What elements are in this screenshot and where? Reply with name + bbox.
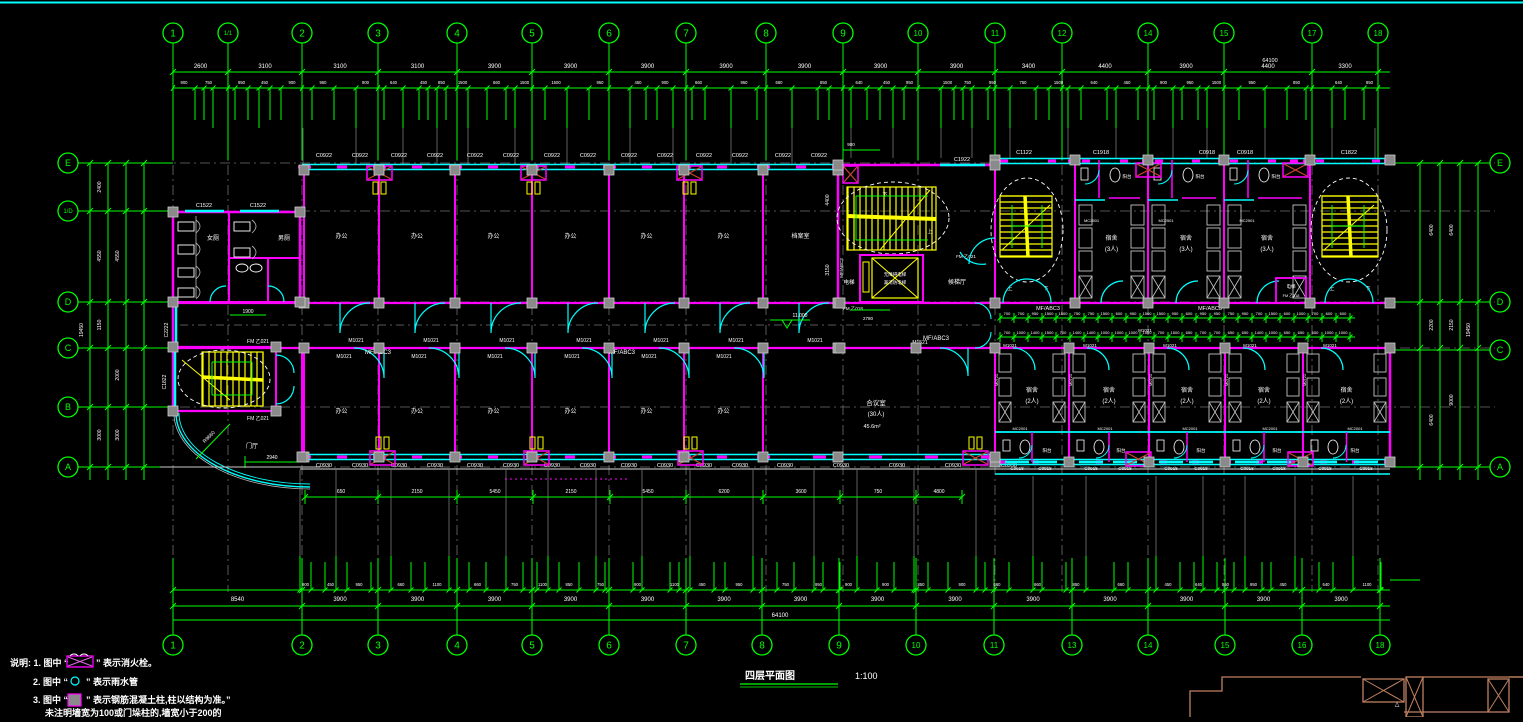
svg-text:(3人): (3人) <box>1105 246 1118 253</box>
svg-text:640: 640 <box>1335 80 1343 85</box>
svg-text:M1021: M1021 <box>1163 343 1177 348</box>
svg-text:3000: 3000 <box>97 429 103 440</box>
svg-text:950: 950 <box>1187 80 1195 85</box>
svg-text:C1122: C1122 <box>1016 150 1032 156</box>
svg-text:FM 乙018: FM 乙018 <box>1283 293 1300 298</box>
svg-text:(2人): (2人) <box>1180 398 1193 405</box>
svg-text:M1021: M1021 <box>1323 343 1337 348</box>
svg-text:10: 10 <box>912 641 921 650</box>
svg-text:门厅: 门厅 <box>246 442 258 450</box>
svg-text:(2人): (2人) <box>1340 398 1353 405</box>
svg-text:750: 750 <box>1020 80 1028 85</box>
svg-text:C0918: C0918 <box>1010 466 1024 471</box>
svg-text:C0922: C0922 <box>467 153 483 159</box>
svg-text:C0918: C0918 <box>1318 466 1332 471</box>
svg-text:C0930: C0930 <box>945 463 961 469</box>
svg-text:640: 640 <box>390 80 398 85</box>
svg-text:阳台: 阳台 <box>1273 447 1282 454</box>
svg-text:640: 640 <box>856 80 864 85</box>
svg-text:950: 950 <box>736 582 744 587</box>
svg-text:合议室: 合议室 <box>866 398 886 407</box>
svg-text:2200: 2200 <box>1429 319 1435 330</box>
svg-text:850: 850 <box>1293 80 1301 85</box>
svg-text:650: 650 <box>1228 330 1235 335</box>
svg-text:900: 900 <box>181 80 189 85</box>
svg-text:办公: 办公 <box>335 232 347 240</box>
svg-text:候梯厅: 候梯厅 <box>948 278 966 286</box>
svg-text:C2222: C2222 <box>164 322 170 337</box>
svg-text:1500: 1500 <box>1157 311 1167 316</box>
svg-text:450: 450 <box>635 80 643 85</box>
svg-text:3100: 3100 <box>411 64 425 70</box>
svg-text:(2人): (2人) <box>1025 398 1038 405</box>
svg-text:750: 750 <box>1228 311 1235 316</box>
svg-text:阳台: 阳台 <box>1043 447 1052 454</box>
svg-text:C0922: C0922 <box>427 153 443 159</box>
svg-text:450: 450 <box>699 582 707 587</box>
svg-text:MC2001: MC2001 <box>1097 426 1113 431</box>
svg-text:650: 650 <box>1284 330 1291 335</box>
svg-text:C0918: C0918 <box>1194 466 1208 471</box>
svg-text:C0922: C0922 <box>657 153 673 159</box>
svg-text:FM 乙021: FM 乙021 <box>247 415 269 422</box>
svg-text:2400: 2400 <box>97 181 103 192</box>
svg-text:MC2001: MC2001 <box>1347 426 1363 431</box>
svg-text:MC2001: MC2001 <box>1182 426 1198 431</box>
svg-text:FM 乙021: FM 乙021 <box>247 338 269 345</box>
svg-text:办公: 办公 <box>640 407 652 415</box>
svg-text:C0922: C0922 <box>544 153 560 159</box>
svg-text:C0930: C0930 <box>427 463 443 469</box>
svg-text:宿舍: 宿舍 <box>1180 234 1192 242</box>
svg-text:750: 750 <box>597 582 605 587</box>
svg-text:宿舍: 宿舍 <box>1105 234 1117 242</box>
svg-text:1400: 1400 <box>1255 330 1265 335</box>
svg-text:C0918: C0918 <box>1199 150 1215 156</box>
svg-text:1:100: 1:100 <box>855 671 878 681</box>
svg-text:办公: 办公 <box>564 232 576 240</box>
svg-text:3900: 3900 <box>641 597 655 603</box>
svg-text:M0721: M0721 <box>1068 373 1073 386</box>
svg-text:950: 950 <box>989 80 997 85</box>
svg-text:3900: 3900 <box>1103 597 1117 603</box>
svg-text:5450: 5450 <box>489 489 500 495</box>
svg-text:3100: 3100 <box>258 64 272 70</box>
svg-text:3900: 3900 <box>488 64 502 70</box>
svg-text:3900: 3900 <box>794 597 808 603</box>
svg-text:3900: 3900 <box>1179 64 1193 70</box>
svg-text:4: 4 <box>454 641 460 652</box>
svg-text:7: 7 <box>683 641 689 652</box>
svg-text:11: 11 <box>990 641 999 650</box>
svg-text:1500: 1500 <box>1101 311 1111 316</box>
svg-text:3. 图中 “: 3. 图中 “ <box>33 694 68 705</box>
svg-text:600: 600 <box>1186 311 1193 316</box>
svg-text:3900: 3900 <box>1257 597 1271 603</box>
svg-text:宿舍: 宿舍 <box>1103 386 1115 394</box>
svg-text:850: 850 <box>918 582 926 587</box>
svg-text:6400: 6400 <box>1429 414 1435 425</box>
svg-text:C0930: C0930 <box>316 463 332 469</box>
svg-text:说明: 1. 图中 “: 说明: 1. 图中 “ <box>10 657 69 668</box>
svg-text:电梯: 电梯 <box>843 278 855 286</box>
svg-text:女厕: 女厕 <box>207 234 219 242</box>
svg-text:450: 450 <box>1280 582 1288 587</box>
svg-text:C1822: C1822 <box>1341 150 1357 156</box>
svg-text:C1918: C1918 <box>1093 150 1109 156</box>
svg-text:M0721: M0721 <box>1224 373 1229 386</box>
svg-text:3900: 3900 <box>1180 597 1194 603</box>
svg-text:1: 1 <box>170 641 176 652</box>
svg-text:1400: 1400 <box>1031 330 1041 335</box>
svg-text:A: A <box>1497 462 1503 472</box>
svg-text:3900: 3900 <box>948 597 962 603</box>
svg-text:1900: 1900 <box>242 309 253 315</box>
svg-text:14: 14 <box>1144 29 1153 38</box>
svg-text:M0721: M0721 <box>1148 373 1153 386</box>
svg-text:办公: 办公 <box>717 232 729 240</box>
svg-text:未注明墙宽为100或门垛柱的,墙宽小于200的: 未注明墙宽为100或门垛柱的,墙宽小于200的 <box>44 707 222 717</box>
svg-text:15: 15 <box>1220 29 1229 38</box>
svg-text:M1021: M1021 <box>1138 328 1152 333</box>
svg-text:M1021: M1021 <box>487 354 503 360</box>
svg-text:750: 750 <box>1088 311 1095 316</box>
svg-text:上: 上 <box>927 228 932 235</box>
svg-text:750: 750 <box>511 582 519 587</box>
svg-text:C0918: C0918 <box>1038 466 1052 471</box>
svg-text:M1021: M1021 <box>1003 343 1017 348</box>
svg-text:14: 14 <box>1144 641 1153 650</box>
svg-text:450: 450 <box>327 582 335 587</box>
svg-text:△: △ <box>1395 702 1400 708</box>
svg-text:4800: 4800 <box>933 489 944 495</box>
svg-text:C0930: C0930 <box>467 463 483 469</box>
svg-text:C0918: C0918 <box>1164 466 1178 471</box>
svg-text:1100: 1100 <box>1362 582 1372 587</box>
svg-text:办公: 办公 <box>335 407 347 415</box>
svg-text:C: C <box>65 343 72 353</box>
svg-text:64100: 64100 <box>772 613 789 619</box>
svg-text:宿舍: 宿舍 <box>1181 386 1193 394</box>
svg-text:1500: 1500 <box>1171 330 1181 335</box>
svg-text:950: 950 <box>356 582 364 587</box>
svg-text:1: 1 <box>170 29 176 40</box>
svg-text:3900: 3900 <box>564 597 578 603</box>
svg-text:C0918: C0918 <box>1084 466 1098 471</box>
svg-text:C1922: C1922 <box>954 157 970 163</box>
svg-text:M1021: M1021 <box>1243 343 1257 348</box>
svg-text:3900: 3900 <box>874 64 888 70</box>
svg-text:1400: 1400 <box>1073 330 1083 335</box>
svg-text:阳台: 阳台 <box>1197 447 1206 454</box>
svg-text:4550: 4550 <box>115 250 121 261</box>
svg-text:3900: 3900 <box>1026 597 1040 603</box>
svg-text:1400: 1400 <box>1087 330 1097 335</box>
svg-text:3900: 3900 <box>1334 597 1348 603</box>
svg-text:C0930: C0930 <box>580 463 596 469</box>
svg-text:850: 850 <box>1073 582 1081 587</box>
svg-text:办公: 办公 <box>411 407 423 415</box>
svg-text:600: 600 <box>1340 311 1347 316</box>
svg-text:900: 900 <box>302 582 310 587</box>
svg-text:850: 850 <box>566 582 574 587</box>
svg-text:12: 12 <box>1058 29 1067 38</box>
svg-text:M1021: M1021 <box>716 354 732 360</box>
svg-text:660: 660 <box>994 582 1002 587</box>
svg-text:650: 650 <box>1186 330 1193 335</box>
svg-text:19450: 19450 <box>1466 323 1472 337</box>
svg-text:C0930: C0930 <box>777 463 793 469</box>
svg-text:18: 18 <box>1376 641 1385 650</box>
svg-text:M0721: M0721 <box>994 373 999 386</box>
svg-text:1500: 1500 <box>551 80 561 85</box>
svg-text:450: 450 <box>883 80 891 85</box>
svg-text:3900: 3900 <box>564 64 578 70</box>
svg-text:MC2501: MC2501 <box>1084 218 1100 223</box>
svg-text:950: 950 <box>741 80 749 85</box>
svg-text:45.6m²: 45.6m² <box>863 424 880 430</box>
svg-text:15: 15 <box>1221 641 1230 650</box>
svg-text:1500: 1500 <box>1212 80 1222 85</box>
svg-text:C1822: C1822 <box>162 374 168 389</box>
svg-text:6: 6 <box>606 641 612 652</box>
svg-text:19450: 19450 <box>79 323 85 337</box>
svg-text:2150: 2150 <box>411 489 422 495</box>
svg-text:4400: 4400 <box>1261 64 1275 70</box>
svg-text:C0922: C0922 <box>621 153 637 159</box>
svg-text:2: 2 <box>299 29 305 40</box>
svg-text:E: E <box>1497 158 1503 168</box>
svg-text:450: 450 <box>1124 80 1132 85</box>
svg-text:650: 650 <box>337 489 346 495</box>
svg-text:900: 900 <box>362 80 370 85</box>
svg-text:C0922: C0922 <box>732 153 748 159</box>
svg-text:C0930: C0930 <box>696 463 712 469</box>
svg-text:600: 600 <box>1116 311 1123 316</box>
svg-text:650: 650 <box>1298 330 1305 335</box>
svg-text:阳台: 阳台 <box>1117 447 1126 454</box>
svg-text:850: 850 <box>438 80 446 85</box>
svg-text:700: 700 <box>1004 311 1011 316</box>
svg-text:2940: 2940 <box>266 455 277 461</box>
svg-text:3900: 3900 <box>488 597 502 603</box>
svg-text:办公: 办公 <box>487 232 499 240</box>
svg-text:C0922: C0922 <box>352 153 368 159</box>
svg-text:C0918: C0918 <box>1240 466 1254 471</box>
svg-text:(3人): (3人) <box>1179 246 1192 253</box>
svg-text:1500: 1500 <box>520 80 530 85</box>
svg-text:C0930: C0930 <box>621 463 637 469</box>
svg-text:700: 700 <box>1004 330 1011 335</box>
svg-text:MC2001: MC2001 <box>1012 426 1028 431</box>
svg-text:660: 660 <box>1118 582 1126 587</box>
svg-text:660: 660 <box>493 80 501 85</box>
svg-text:1000: 1000 <box>1115 330 1125 335</box>
svg-text:950: 950 <box>906 80 914 85</box>
svg-text:E: E <box>65 158 71 168</box>
svg-text:700: 700 <box>1214 330 1221 335</box>
svg-text:B: B <box>65 402 71 412</box>
svg-text:C0918: C0918 <box>1272 466 1286 471</box>
svg-text:3900: 3900 <box>641 64 655 70</box>
svg-text:(2人): (2人) <box>1102 398 1115 405</box>
svg-text:3900: 3900 <box>717 597 731 603</box>
svg-text:64100: 64100 <box>1262 58 1277 64</box>
svg-text:700: 700 <box>1158 330 1165 335</box>
svg-text:3900: 3900 <box>871 597 885 603</box>
svg-text:900: 900 <box>959 582 967 587</box>
svg-text:宿舍: 宿舍 <box>1261 234 1273 242</box>
svg-text:C1522: C1522 <box>250 203 266 209</box>
svg-text:1500: 1500 <box>943 80 953 85</box>
svg-text:C0930: C0930 <box>833 463 849 469</box>
svg-text:2. 图中 “: 2. 图中 “ <box>33 676 68 687</box>
svg-text:1/D: 1/D <box>63 209 73 215</box>
svg-text:C0930: C0930 <box>544 463 560 469</box>
svg-text:700: 700 <box>1060 330 1067 335</box>
svg-text:9000: 9000 <box>1449 394 1455 405</box>
svg-text:750: 750 <box>964 80 972 85</box>
svg-text:档案室: 档案室 <box>791 232 809 240</box>
svg-text:下: 下 <box>882 192 887 198</box>
svg-text:电梯: 电梯 <box>1287 283 1296 290</box>
svg-text:950: 950 <box>320 80 328 85</box>
svg-text:700: 700 <box>1018 311 1025 316</box>
svg-text:10: 10 <box>914 29 923 38</box>
svg-text:5: 5 <box>529 29 535 40</box>
svg-text:700: 700 <box>1256 311 1263 316</box>
svg-text:6400: 6400 <box>1449 224 1455 235</box>
svg-text:750: 750 <box>205 80 213 85</box>
svg-text:3900: 3900 <box>411 597 425 603</box>
svg-text:660: 660 <box>398 582 406 587</box>
svg-text:8540: 8540 <box>231 597 245 603</box>
svg-text:兼消防电梯: 兼消防电梯 <box>884 279 907 286</box>
svg-text:C0930: C0930 <box>503 463 519 469</box>
svg-text:4400: 4400 <box>825 194 831 205</box>
svg-text:M1021: M1021 <box>653 338 669 344</box>
svg-text:宿舍: 宿舍 <box>1258 386 1270 394</box>
svg-text:900: 900 <box>845 582 853 587</box>
svg-text:640: 640 <box>1195 582 1203 587</box>
svg-text:四层平面图: 四层平面图 <box>745 670 795 682</box>
svg-text:M1021: M1021 <box>348 338 364 344</box>
svg-text:3100: 3100 <box>333 64 347 70</box>
svg-text:700: 700 <box>1200 330 1207 335</box>
svg-text:450: 450 <box>420 80 428 85</box>
svg-text:6200: 6200 <box>718 489 729 495</box>
svg-text:3600: 3600 <box>795 489 806 495</box>
svg-text:3900: 3900 <box>798 64 812 70</box>
svg-text:3000: 3000 <box>115 429 121 440</box>
svg-text:9: 9 <box>840 29 846 40</box>
svg-text:900: 900 <box>662 80 670 85</box>
svg-text:18: 18 <box>1374 29 1383 38</box>
svg-text:1000: 1000 <box>1269 330 1279 335</box>
svg-text:640: 640 <box>1091 80 1099 85</box>
svg-text:C0930: C0930 <box>732 463 748 469</box>
svg-text:850: 850 <box>1366 80 1374 85</box>
svg-text:3: 3 <box>375 641 381 652</box>
svg-text:450: 450 <box>1165 582 1173 587</box>
svg-text:900: 900 <box>882 582 890 587</box>
svg-text:C0922: C0922 <box>391 153 407 159</box>
svg-text:4550: 4550 <box>97 250 103 261</box>
svg-text:2000: 2000 <box>115 369 121 380</box>
svg-text:M1021: M1021 <box>564 354 580 360</box>
svg-text:C1522: C1522 <box>196 203 212 209</box>
svg-text:1500: 1500 <box>1054 80 1064 85</box>
svg-text:MF/ABC3: MF/ABC3 <box>923 336 950 342</box>
svg-text:M1021: M1021 <box>499 338 515 344</box>
svg-text:无障碍电梯: 无障碍电梯 <box>884 271 907 278</box>
svg-text:9: 9 <box>836 641 842 652</box>
svg-text:950: 950 <box>238 80 246 85</box>
svg-text:3150: 3150 <box>825 264 831 275</box>
svg-text:1000: 1000 <box>1017 330 1027 335</box>
svg-text:950: 950 <box>1242 311 1249 316</box>
svg-text:MF/ABC3: MF/ABC3 <box>839 258 844 278</box>
svg-text:1100: 1100 <box>670 582 680 587</box>
svg-text:660: 660 <box>695 80 703 85</box>
svg-text:C0922: C0922 <box>580 153 596 159</box>
svg-text:1/1: 1/1 <box>224 31 233 37</box>
svg-text:660: 660 <box>776 80 784 85</box>
svg-text:3900: 3900 <box>333 597 347 603</box>
svg-text:MC2501: MC2501 <box>1158 218 1174 223</box>
svg-text:(30人): (30人) <box>868 411 885 418</box>
svg-text:3900: 3900 <box>719 64 733 70</box>
svg-text:11.000: 11.000 <box>793 313 808 319</box>
svg-text:办公: 办公 <box>717 407 729 415</box>
svg-text:6: 6 <box>606 29 612 40</box>
svg-text:3900: 3900 <box>950 64 964 70</box>
svg-text:1500: 1500 <box>1143 311 1153 316</box>
svg-text:M0721: M0721 <box>1302 373 1307 386</box>
svg-text:750: 750 <box>1074 311 1081 316</box>
svg-text:阳台: 阳台 <box>1196 173 1205 180</box>
svg-text:C0922: C0922 <box>316 153 332 159</box>
svg-text:A: A <box>65 462 71 472</box>
svg-text:16: 16 <box>1298 641 1307 650</box>
svg-text:宿舍: 宿舍 <box>1340 386 1352 394</box>
svg-text:办公: 办公 <box>411 232 423 240</box>
svg-text:C0922: C0922 <box>811 153 827 159</box>
svg-text:1100: 1100 <box>432 582 442 587</box>
svg-text:3: 3 <box>375 29 381 40</box>
svg-text:1000: 1000 <box>1325 330 1335 335</box>
svg-text:3400: 3400 <box>1022 64 1036 70</box>
svg-text:950: 950 <box>597 80 605 85</box>
svg-text:1500: 1500 <box>1059 311 1069 316</box>
svg-text:MF/ABC3: MF/ABC3 <box>1198 306 1222 312</box>
svg-text:C0922: C0922 <box>696 153 712 159</box>
svg-text:3300: 3300 <box>1338 64 1352 70</box>
svg-text:640: 640 <box>1323 582 1331 587</box>
svg-text:17: 17 <box>1308 29 1317 38</box>
svg-text:M1021: M1021 <box>807 338 823 344</box>
svg-text:FM 乙021: FM 乙021 <box>956 253 976 259</box>
svg-text:1000: 1000 <box>1297 311 1307 316</box>
svg-text:1100: 1100 <box>538 582 548 587</box>
svg-text:950: 950 <box>1130 311 1137 316</box>
svg-text:1000: 1000 <box>1339 330 1349 335</box>
svg-text:(2人): (2人) <box>1257 398 1270 405</box>
svg-text:阳台: 阳台 <box>1123 173 1132 180</box>
svg-text:D: D <box>65 297 72 307</box>
svg-text:6400: 6400 <box>1429 224 1435 235</box>
svg-text:13: 13 <box>1068 641 1077 650</box>
